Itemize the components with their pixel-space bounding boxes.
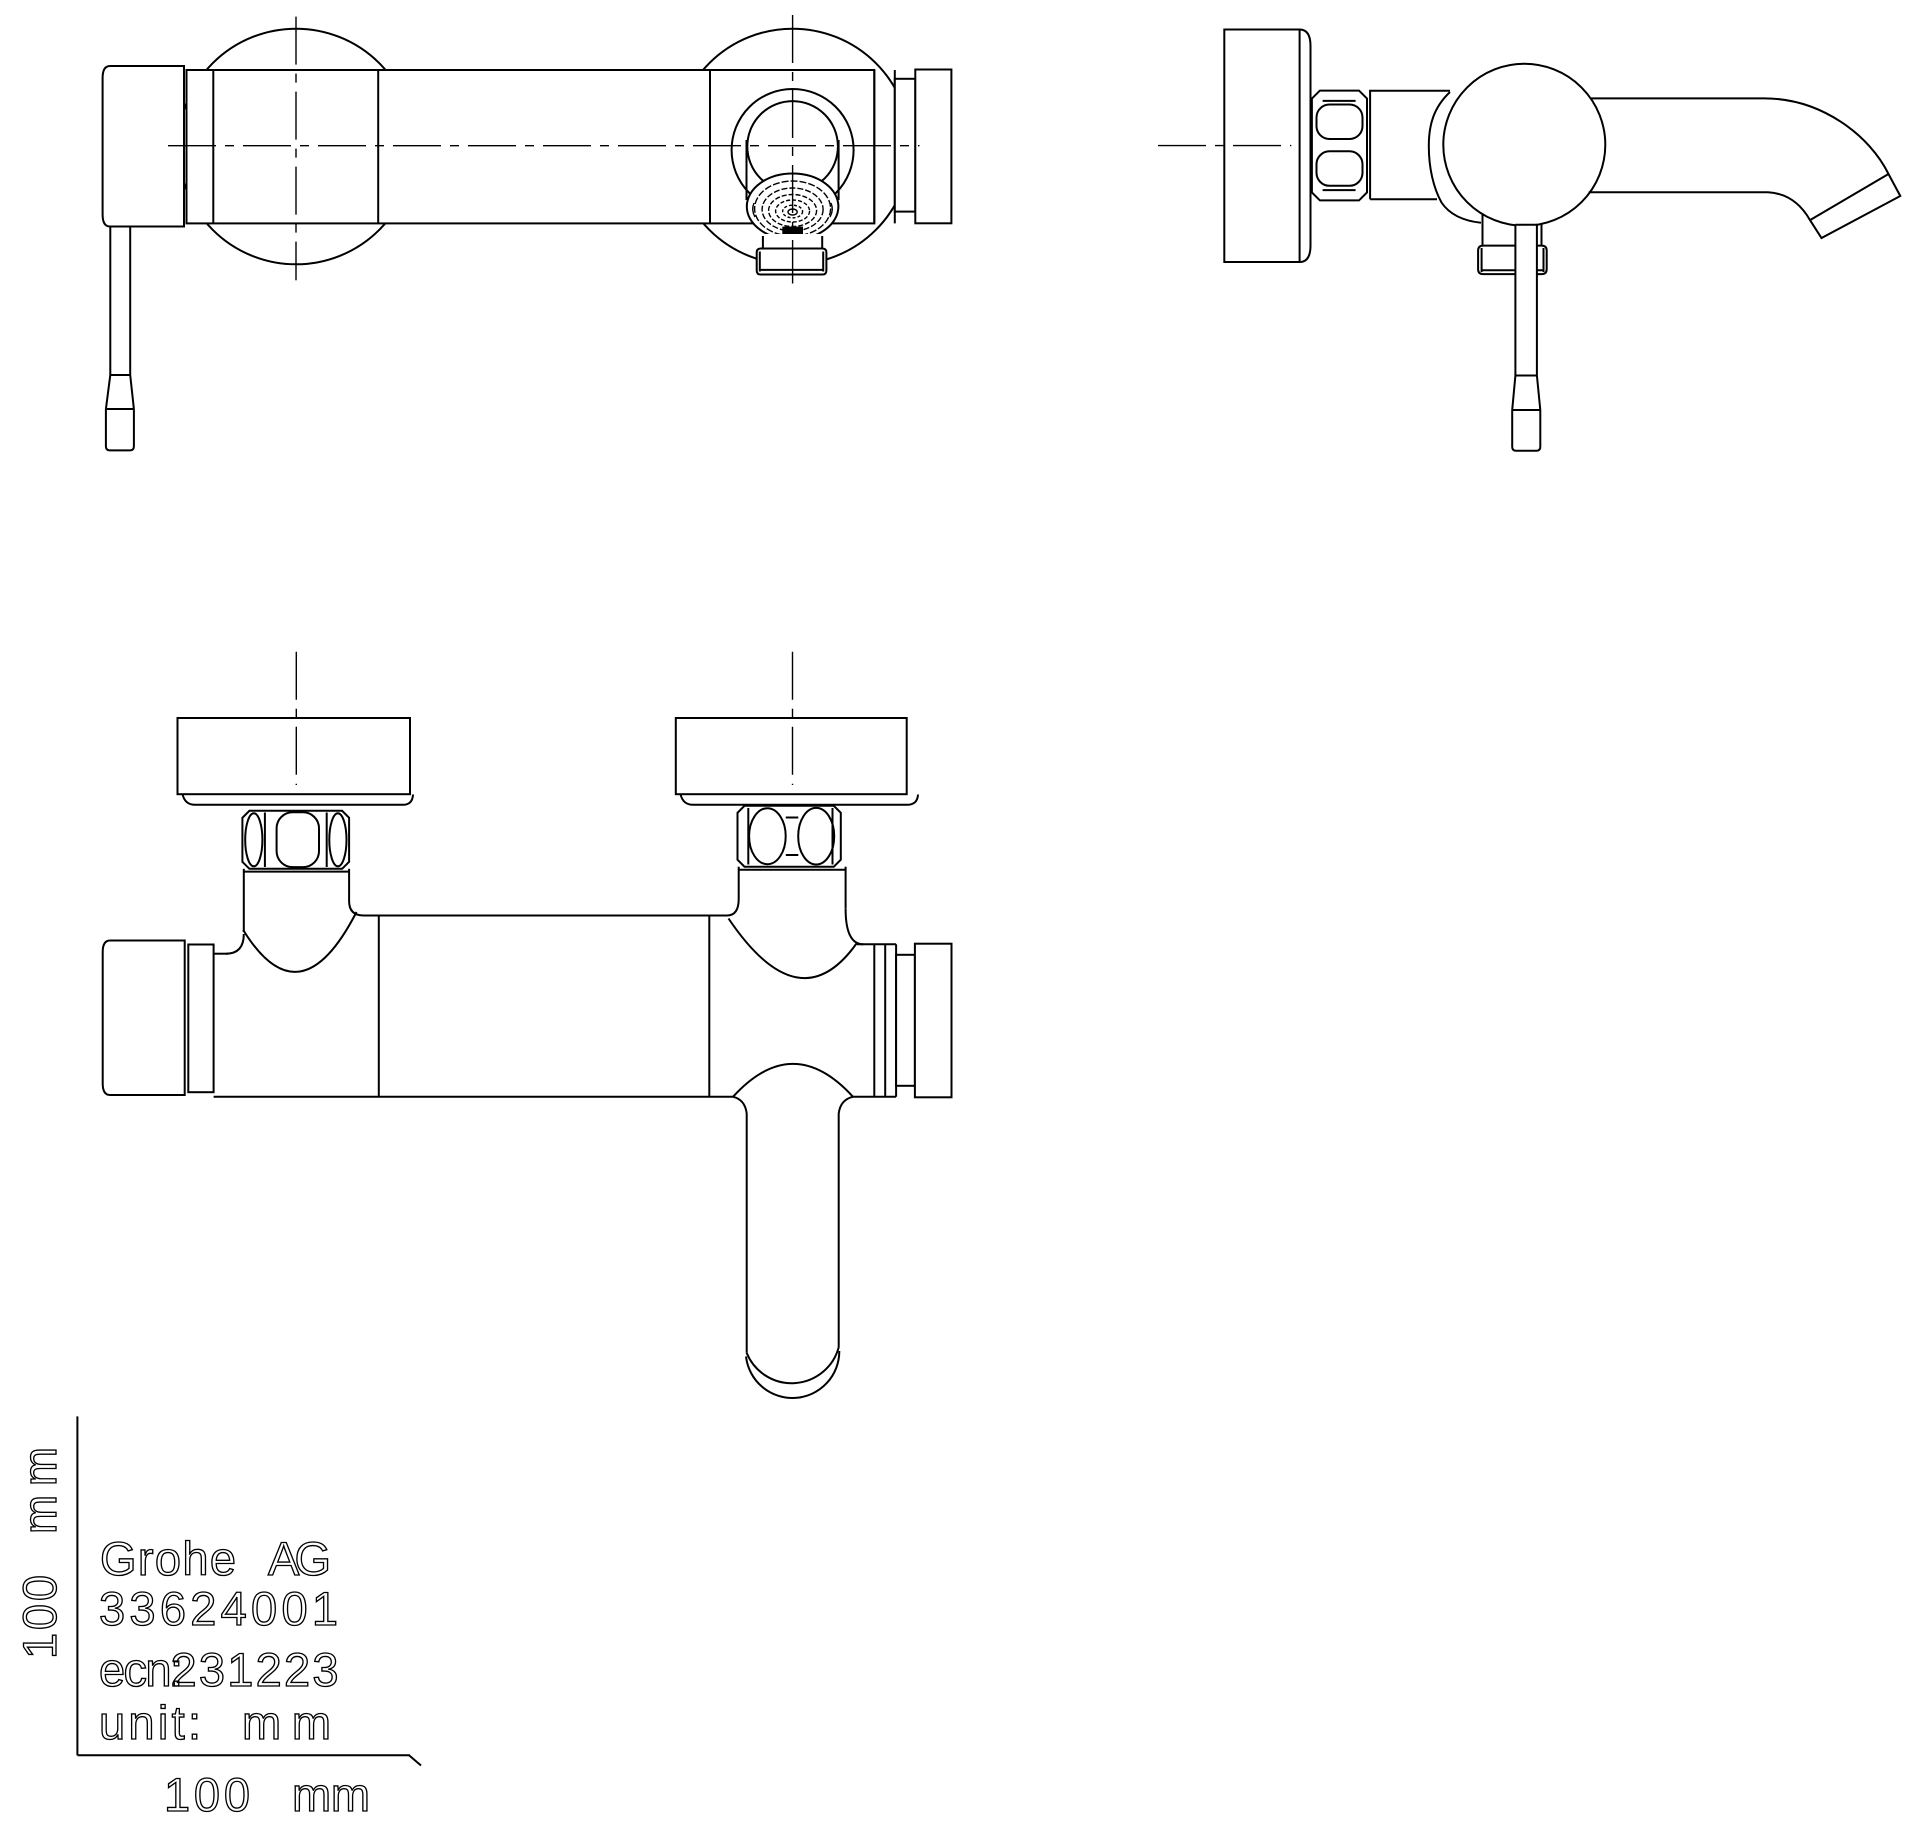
svg-text:AG: AG: [268, 1532, 331, 1585]
svg-text:100: 100: [13, 1575, 66, 1659]
svg-text:Grohe: Grohe: [100, 1532, 236, 1585]
svg-text:100: 100: [164, 1768, 250, 1821]
svg-text:mm: mm: [292, 1768, 370, 1821]
